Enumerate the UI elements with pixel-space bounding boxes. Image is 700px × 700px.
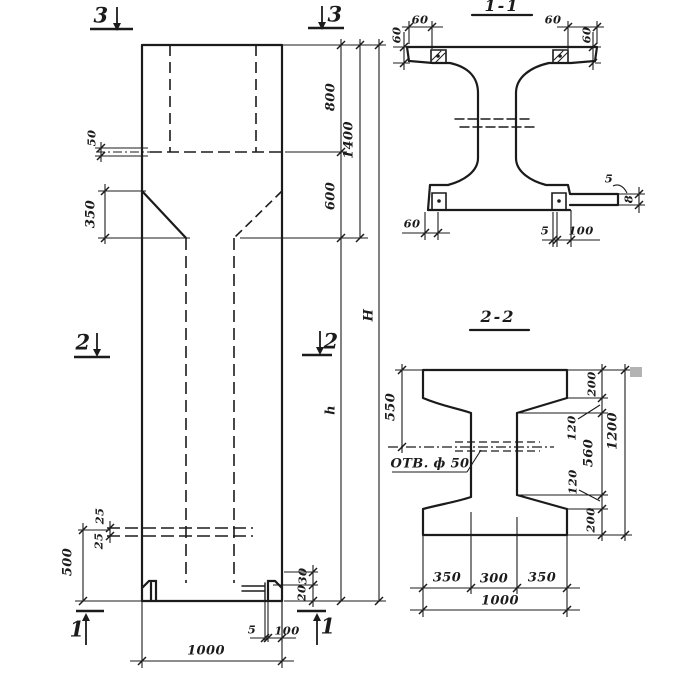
dim-5-bottom-label: 5 <box>541 225 549 237</box>
dim-5-hook-label: 5 <box>605 173 613 185</box>
dim-20-label: 20 <box>296 585 308 602</box>
dim-1000-bottom-label: 1000 <box>481 595 519 608</box>
dim-100-foot-label: 100 <box>274 625 299 637</box>
section-1-1-outline <box>407 15 618 210</box>
section-marker-2-right: 2 <box>323 331 338 352</box>
section-2-2-title: 2-2 <box>481 309 516 325</box>
dim-350-label: 350 <box>85 200 98 228</box>
dim-25-top-label: 25 <box>94 508 106 525</box>
dim-200-bottom-label: 200 <box>585 507 597 532</box>
dim-50-label: 50 <box>86 130 98 147</box>
elevation-outline <box>142 45 282 601</box>
section-1-1-title: 1-1 <box>485 0 520 14</box>
dim-350-left-label: 350 <box>433 572 461 585</box>
drawing-sheet: 3 3 2 2 1 1 50 350 800 600 1400 h H 25 2… <box>0 0 700 700</box>
dim-1000-label: 1000 <box>187 645 225 658</box>
dim-60-top-right-label: 60 <box>545 14 562 26</box>
dim-h-label: h <box>325 405 338 415</box>
dim-60-left-vert-label: 60 <box>391 27 403 44</box>
dim-60-top-left-label: 60 <box>412 14 429 26</box>
dim-30-label: 30 <box>297 568 309 585</box>
drawing-linework <box>0 0 700 700</box>
section-marker-3-right: 3 <box>327 4 342 25</box>
section-2-2-dimensions <box>392 364 632 617</box>
dim-200-top-label: 200 <box>586 371 598 396</box>
section-marker-1-right: 1 <box>320 616 335 637</box>
hole-diameter-label: ОТВ. ф 50 <box>391 458 470 471</box>
dim-H-label: H <box>363 309 376 322</box>
dim-60-bottom-left-label: 60 <box>404 218 421 230</box>
dim-120-bottom-label: 120 <box>567 469 579 494</box>
dim-60-right-vert-label: 60 <box>581 27 593 44</box>
dim-120-top-label: 120 <box>566 415 578 440</box>
dim-560-label: 560 <box>583 439 596 467</box>
scan-artifact-square <box>630 367 642 377</box>
dim-8-plate-label: 8 <box>623 195 635 203</box>
dim-500-label: 500 <box>62 548 75 576</box>
dim-600-label: 600 <box>325 182 338 210</box>
section-marker-1-left: 1 <box>69 619 84 640</box>
section-cut-markers <box>74 6 344 645</box>
section-2-2-outline <box>423 330 567 535</box>
dim-300-label: 300 <box>480 573 508 586</box>
dim-1400-label: 1400 <box>343 121 356 159</box>
dim-1200-label: 1200 <box>607 412 620 450</box>
dim-350-right-label: 350 <box>528 572 556 585</box>
dim-25-bottom-label: 25 <box>93 533 105 550</box>
elevation-dimension-lines <box>75 39 386 668</box>
dim-550-label: 550 <box>385 393 398 421</box>
section-marker-3-left: 3 <box>93 5 108 26</box>
dim-800-label: 800 <box>325 83 338 111</box>
section-marker-2-left: 2 <box>75 332 90 353</box>
dim-5-foot-label: 5 <box>248 624 256 636</box>
elevation-hidden-lines <box>96 45 283 583</box>
dim-100-bottom-label: 100 <box>568 225 593 237</box>
